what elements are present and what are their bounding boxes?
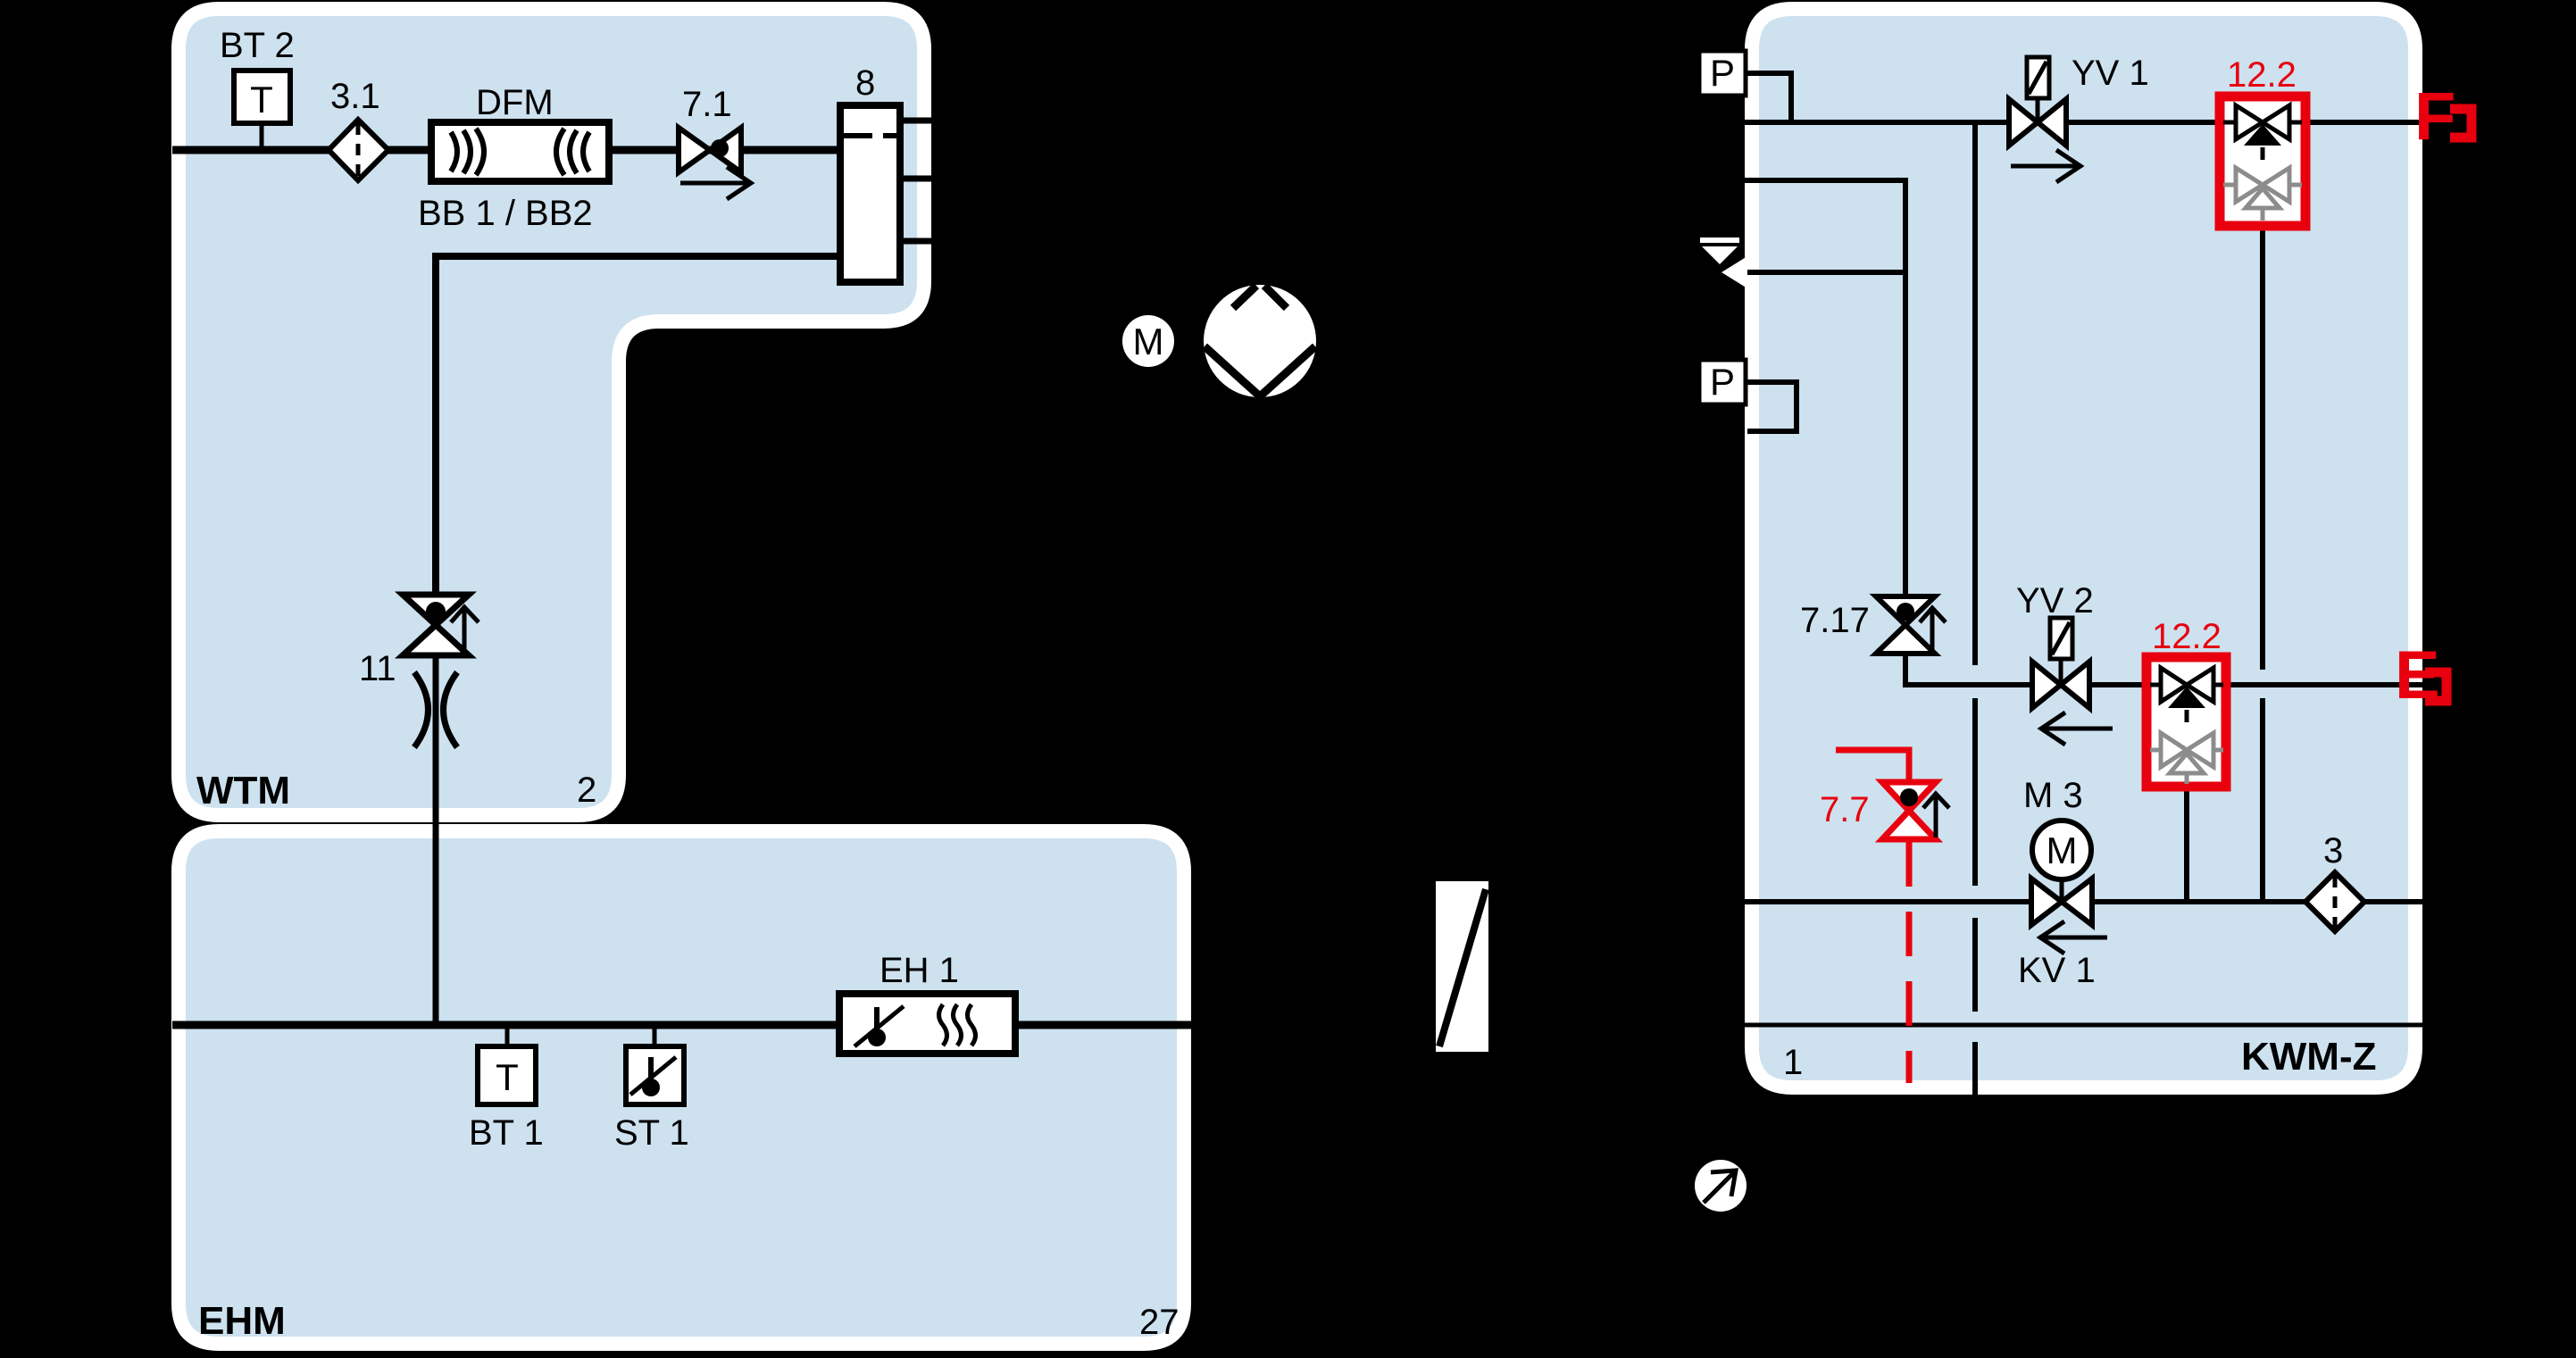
tank-8-label: 8 — [855, 63, 875, 103]
connector-f-label: F — [2414, 79, 2455, 154]
pressure-mid-symbol: P — [1710, 361, 1735, 403]
pressure-top-symbol: P — [1710, 52, 1735, 94]
check-valve-kv1-label: KV 1 — [2018, 951, 2096, 990]
st1-label: ST 1 — [614, 1113, 689, 1153]
protection-module-top-icon — [2220, 96, 2305, 226]
kwmz-number: 1 — [1783, 1043, 1803, 1082]
solenoid-valve-yv1-label: YV 1 — [2072, 54, 2149, 93]
valve-11-label: 11 — [359, 649, 396, 688]
heater-eh1-icon — [839, 994, 1015, 1054]
flow-direction-circle-icon — [1695, 1160, 1747, 1212]
check-valve-7-1-label: 7.1 — [682, 85, 732, 124]
hydraulic-schematic: T BT 2 3.1 DFM BB 1 / BB2 7.1 8 11 WTM 2 — [0, 0, 2576, 1358]
sight-glass-icon — [1436, 881, 1488, 1052]
protection-module-top-label: 12.2 — [2227, 55, 2297, 95]
flow-meter-dfm-label: DFM — [476, 83, 554, 122]
solenoid-valve-yv2-label: YV 2 — [2016, 581, 2094, 621]
kwmz-panel — [1752, 9, 2415, 1087]
bt1-symbol: T — [496, 1056, 519, 1098]
flow-meter-dfm-icon — [431, 122, 609, 181]
kwmz-title: KWM-Z — [2241, 1035, 2377, 1079]
ehm-title: EHM — [198, 1299, 286, 1343]
motor-valve-m3-label: M 3 — [2023, 776, 2083, 815]
schematic-canvas: T BT 2 3.1 DFM BB 1 / BB2 7.1 8 11 WTM 2 — [0, 0, 2576, 1358]
protection-module-mid-icon — [2147, 657, 2226, 787]
bt1-label: BT 1 — [469, 1113, 544, 1153]
st1-sensor-box — [626, 1046, 684, 1104]
motor-valve-m3-symbol: M — [2047, 829, 2078, 871]
heater-eh1-label: EH 1 — [880, 951, 959, 990]
flow-meter-bb-label: BB 1 / BB2 — [418, 194, 593, 233]
pump-icon — [1204, 285, 1316, 397]
ehm-number: 27 — [1139, 1303, 1180, 1342]
wtm-number: 2 — [577, 771, 596, 810]
bt2-label: BT 2 — [220, 26, 295, 65]
motor-m-symbol: M — [1133, 321, 1164, 362]
protection-module-mid-label: 12.2 — [2152, 617, 2222, 656]
tank-8-icon — [840, 105, 900, 282]
wtm-title: WTM — [196, 769, 290, 812]
valve-7-17-label: 7.17 — [1800, 601, 1870, 640]
filter-3-1-label: 3.1 — [330, 77, 380, 116]
valve-7-7-label: 7.7 — [1820, 790, 1870, 829]
filter-3-label: 3 — [2323, 831, 2343, 871]
bt2-symbol: T — [250, 79, 273, 121]
